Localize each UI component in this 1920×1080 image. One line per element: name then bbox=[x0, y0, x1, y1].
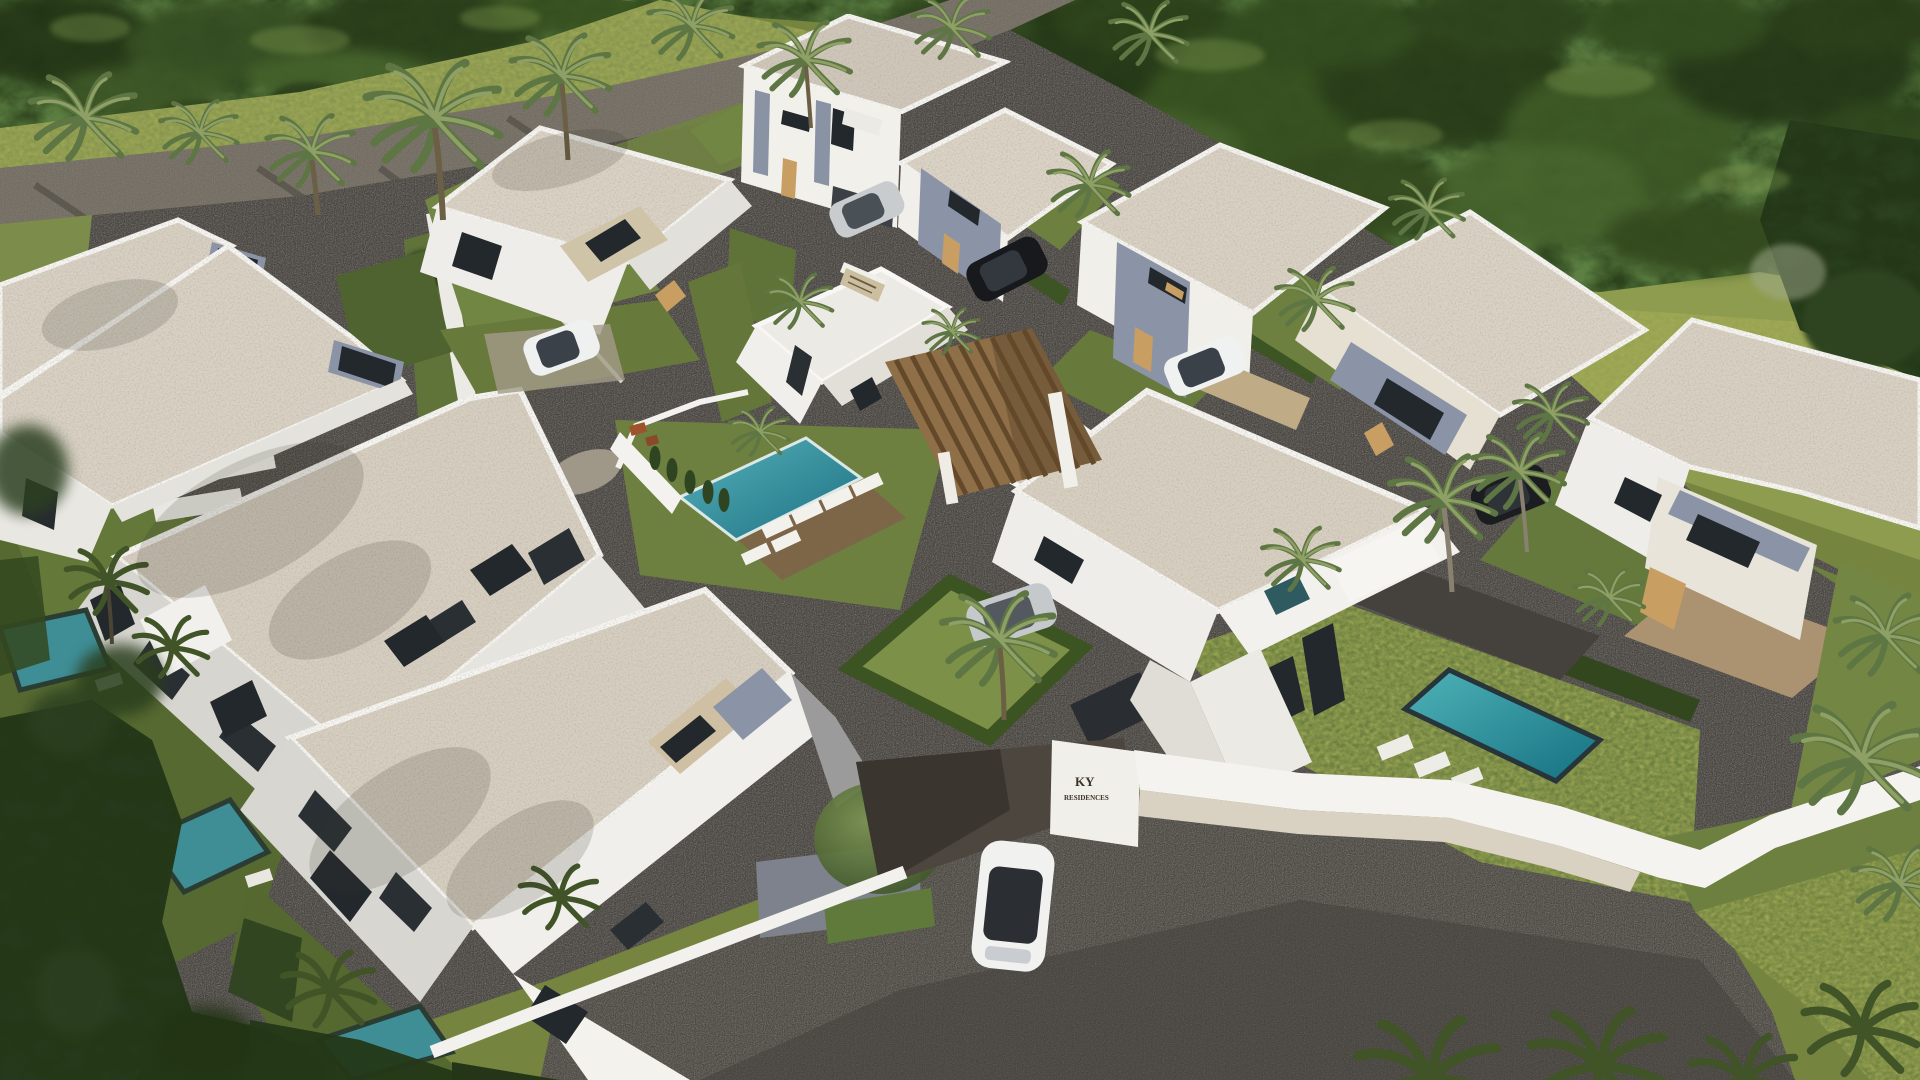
svg-text:RESIDENCES: RESIDENCES bbox=[1064, 794, 1109, 802]
svg-text:KY: KY bbox=[1075, 774, 1095, 789]
